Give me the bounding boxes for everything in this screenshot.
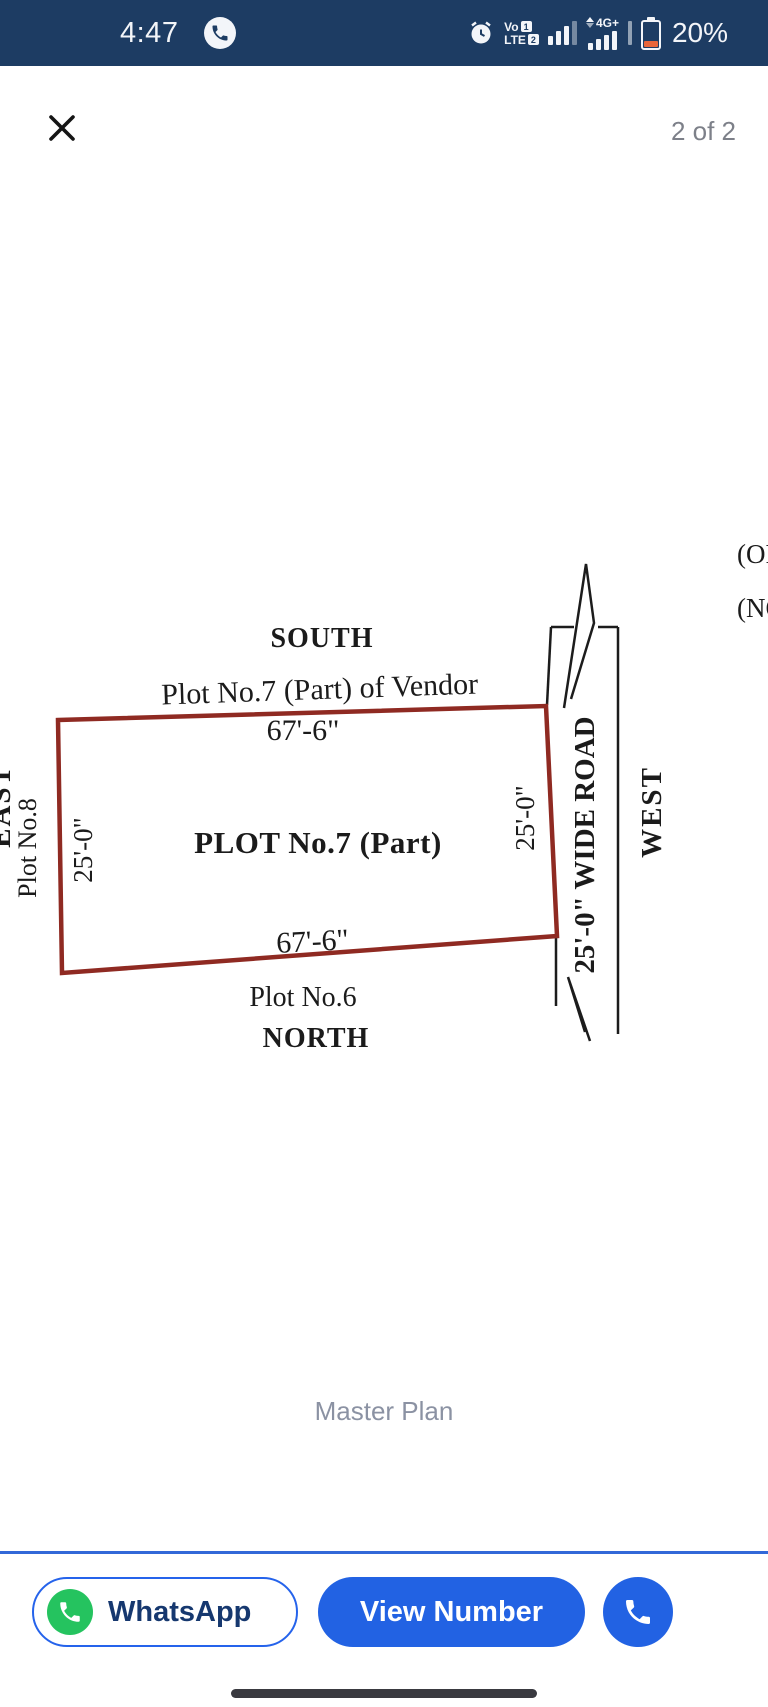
dimension-right: 25'-0" [510,785,540,850]
partial-text-top: (OR [737,539,768,569]
call-button[interactable] [603,1577,673,1647]
arrow-tail-icon [568,977,590,1041]
label-top-neighbor: Plot No.7 (Part) of Vendor [161,667,479,711]
label-west: WEST [636,766,668,858]
plot-title: PLOT No.7 (Part) [194,825,442,860]
label-west-group: WEST [636,766,668,858]
road-label: 25'-0" WIDE ROAD [569,716,601,973]
label-bottom-neighbor: Plot No.6 [249,982,356,1013]
north-arrow-icon [564,564,594,708]
label-left-neighbor-group: Plot No.8 [13,798,42,898]
call-icon [622,1596,654,1628]
label-left-neighbor: Plot No.8 [13,798,42,898]
label-south: SOUTH [270,623,373,654]
whatsapp-button[interactable]: WhatsApp [32,1577,298,1647]
dimension-left-group: 25'-0" [68,817,98,882]
master-plan-image[interactable]: SOUTH Plot No.7 (Part) of Vendor 67'-6" … [0,0,768,1707]
dimension-left: 25'-0" [68,817,98,882]
whatsapp-icon [47,1589,93,1635]
bottom-action-bar: WhatsApp View Number [0,1554,768,1707]
road-label-group: 25'-0" WIDE ROAD [569,716,601,973]
whatsapp-button-label: WhatsApp [108,1596,251,1629]
label-north: NORTH [263,1023,370,1054]
view-number-button[interactable]: View Number [318,1577,585,1647]
gesture-bar[interactable] [231,1689,537,1698]
partial-text-bottom: (NO [737,593,768,623]
phone-screen: 4:47 Vo 1 LTE 2 [0,0,768,1707]
dimension-right-group: 25'-0" [510,785,540,850]
dimension-bottom: 67'-6" [275,923,349,960]
dimension-top: 67'-6" [267,714,340,747]
whatsapp-phone-glyph [57,1599,83,1625]
image-caption: Master Plan [0,1396,768,1427]
